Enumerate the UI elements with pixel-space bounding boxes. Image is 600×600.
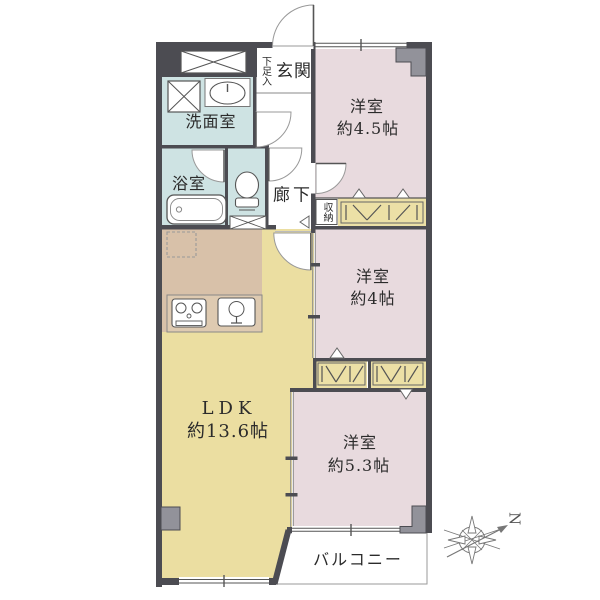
stove-icon	[172, 299, 206, 327]
meter-box-icon	[181, 51, 246, 73]
balcony-label: バルコニー	[313, 552, 403, 568]
bedroom-c-size: 約5.3帖	[328, 458, 390, 474]
vanity-sink-icon	[205, 79, 250, 107]
kitchen-sink-icon	[218, 298, 255, 326]
entrance-door	[273, 5, 314, 49]
entrance-label: 玄関	[276, 64, 312, 81]
washer-pan-icon	[230, 216, 266, 229]
corridor-label: 廊下	[273, 188, 313, 205]
bedroom-b-label: 洋室	[356, 269, 390, 285]
closet-c-floor	[371, 361, 426, 388]
closet-b-floor	[316, 361, 367, 388]
washing-machine-icon	[168, 81, 200, 112]
ldk-label: LDK	[202, 400, 257, 418]
bedroom-c-label: 洋室	[343, 435, 377, 451]
bathtub-icon	[167, 195, 226, 224]
storage-label: 収納	[321, 202, 331, 222]
toilet-icon	[236, 172, 259, 210]
compass-icon	[444, 516, 508, 564]
washroom-label: 洗面室	[185, 114, 236, 130]
shoe-cabinet-label: 下足入	[260, 56, 270, 86]
bathroom-label: 浴室	[172, 176, 206, 192]
floor-plan: 玄関 下足入 洗面室 浴室 廊下 収納 洋室 約4.5帖 洋室 約4帖 洋室 約…	[0, 0, 600, 600]
bedroom-a-size: 約4.5帖	[337, 121, 399, 137]
ldk-size: 約13.6帖	[187, 423, 269, 441]
bedroom-a-label: 洋室	[350, 99, 384, 115]
floor-plan-drawing	[0, 0, 600, 600]
north-label: N	[507, 512, 522, 526]
bedroom-b-size: 約4帖	[350, 291, 395, 307]
